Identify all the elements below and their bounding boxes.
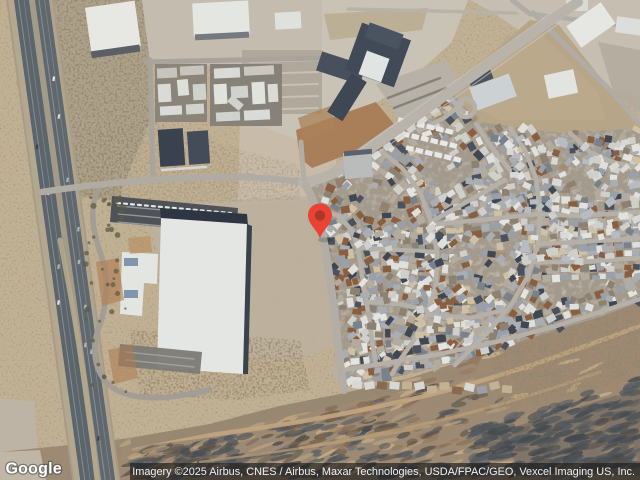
svg-text:Imagery ©2025 Airbus, CNES / A: Imagery ©2025 Airbus, CNES / Airbus, Max…: [132, 466, 635, 478]
svg-text:Google: Google: [6, 461, 62, 478]
